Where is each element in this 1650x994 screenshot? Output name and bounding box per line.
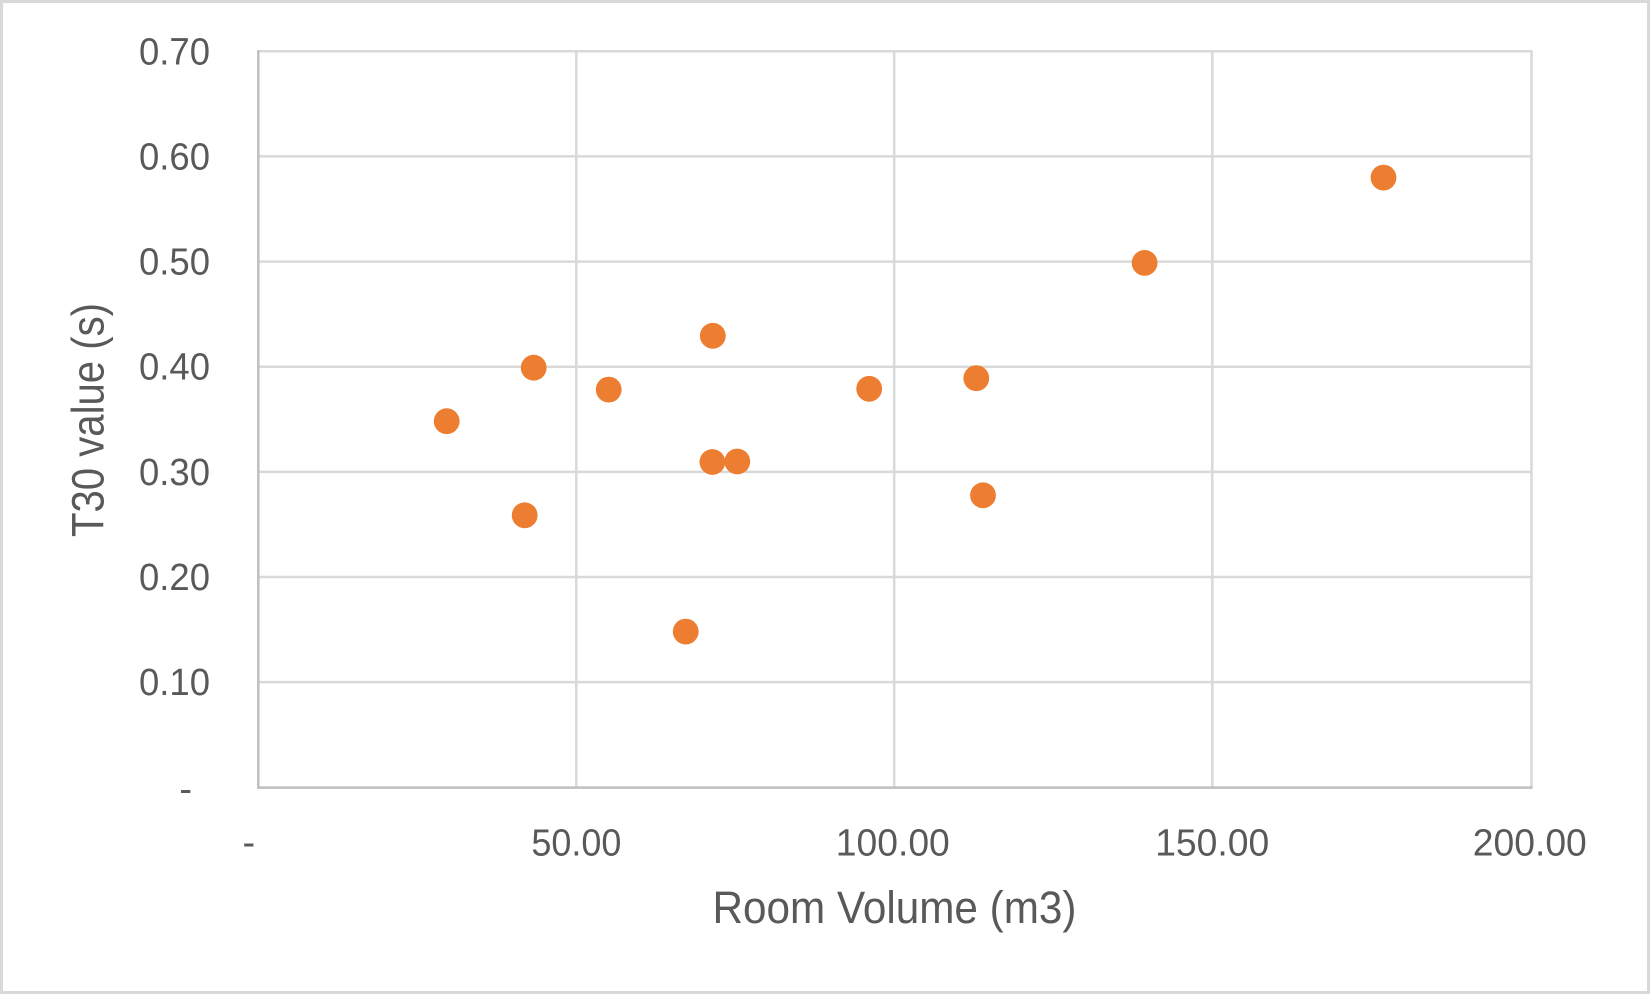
- svg-text:200.00: 200.00: [1473, 823, 1587, 865]
- svg-text:T30 value (s): T30 value (s): [63, 303, 114, 537]
- svg-text:100.00: 100.00: [836, 823, 950, 865]
- svg-text:0.60: 0.60: [139, 136, 210, 178]
- svg-text:0.30: 0.30: [139, 452, 210, 494]
- svg-text:0.70: 0.70: [139, 31, 210, 73]
- svg-text:0.20: 0.20: [139, 557, 210, 599]
- svg-text:Room Volume (m3): Room Volume (m3): [713, 882, 1077, 933]
- svg-text:0.10: 0.10: [139, 662, 210, 704]
- svg-text:-: -: [242, 822, 255, 864]
- svg-text:-: -: [179, 769, 192, 811]
- svg-text:0.50: 0.50: [139, 242, 210, 284]
- svg-text:0.40: 0.40: [139, 347, 210, 389]
- svg-text:50.00: 50.00: [531, 823, 621, 865]
- svg-text:150.00: 150.00: [1155, 823, 1269, 865]
